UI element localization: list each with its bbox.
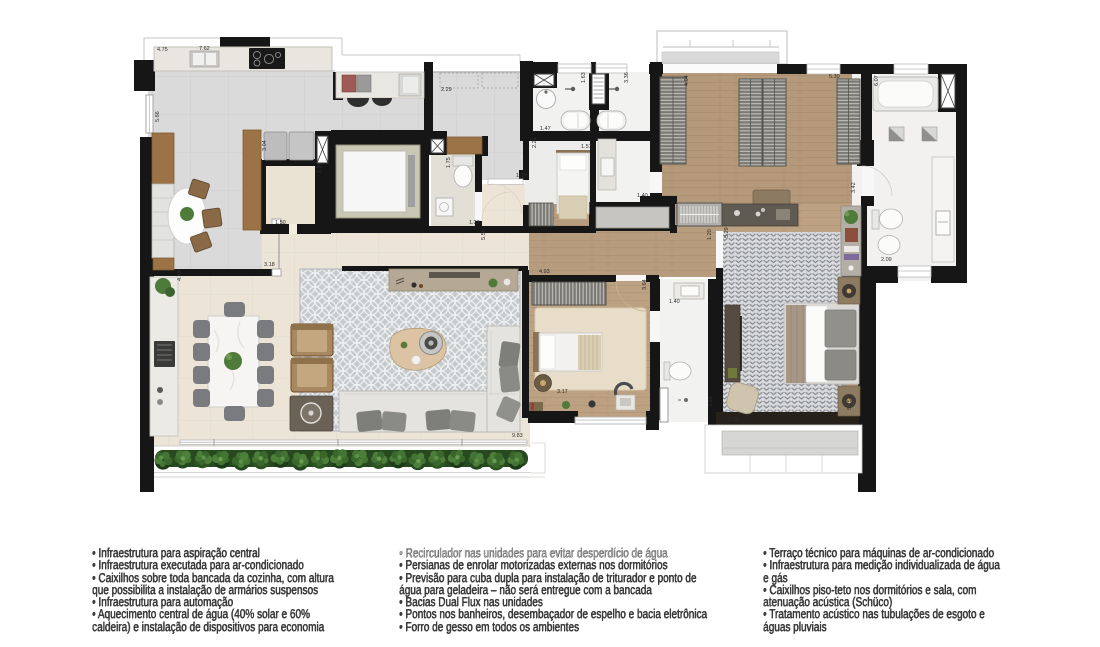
svg-text:1.47: 1.47 xyxy=(540,126,551,132)
svg-text:1.63: 1.63 xyxy=(581,72,587,83)
svg-text:4.93: 4.93 xyxy=(539,269,550,275)
svg-text:3.17: 3.17 xyxy=(557,389,568,395)
svg-text:3.04: 3.04 xyxy=(262,140,268,151)
svg-text:1.40: 1.40 xyxy=(637,193,648,199)
svg-text:3.42: 3.42 xyxy=(851,182,857,193)
svg-text:3.64: 3.64 xyxy=(642,279,648,290)
svg-text:5.59: 5.59 xyxy=(481,229,487,240)
svg-text:3.70: 3.70 xyxy=(728,417,739,423)
svg-text:5.30: 5.30 xyxy=(829,74,840,80)
svg-text:2.09: 2.09 xyxy=(881,257,892,263)
svg-text:2.29: 2.29 xyxy=(441,87,452,93)
svg-text:1.50: 1.50 xyxy=(275,220,286,226)
svg-text:1.20: 1.20 xyxy=(707,229,713,240)
svg-text:1.40: 1.40 xyxy=(669,299,680,305)
svg-text:2.21: 2.21 xyxy=(532,137,538,148)
svg-text:3.18: 3.18 xyxy=(264,262,275,268)
svg-text:1.00: 1.00 xyxy=(516,173,527,179)
svg-text:5.66: 5.66 xyxy=(155,111,161,122)
svg-text:7.62: 7.62 xyxy=(199,46,210,52)
svg-text:6.07: 6.07 xyxy=(874,75,880,86)
svg-text:1.75: 1.75 xyxy=(446,157,452,168)
svg-text:4.49: 4.49 xyxy=(177,270,183,281)
svg-text:9.83: 9.83 xyxy=(512,433,523,439)
svg-text:5.75: 5.75 xyxy=(847,399,853,410)
svg-text:4.75: 4.75 xyxy=(157,47,168,53)
svg-text:5.29: 5.29 xyxy=(724,227,730,238)
svg-text:3.36: 3.36 xyxy=(624,72,630,83)
svg-text:4.04: 4.04 xyxy=(684,75,690,86)
svg-text:1.57: 1.57 xyxy=(317,162,323,173)
svg-text:1.23: 1.23 xyxy=(469,220,480,226)
svg-text:1.57: 1.57 xyxy=(581,144,592,150)
svg-text:3.59: 3.59 xyxy=(708,396,714,407)
